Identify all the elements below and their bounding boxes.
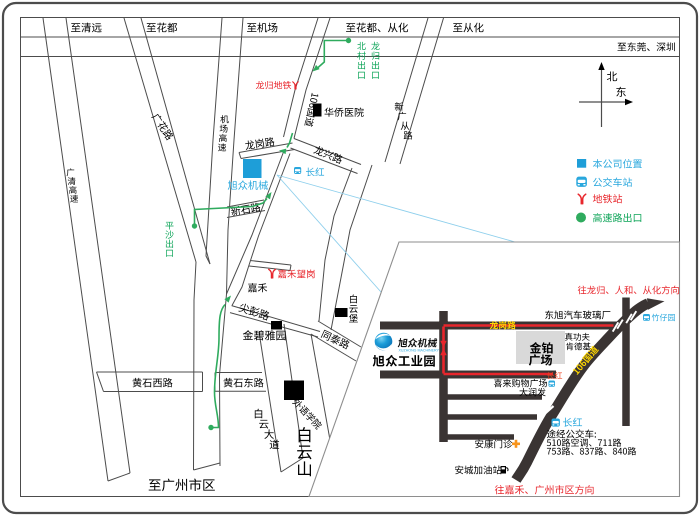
- svg-text:XUZHONG MACHINERY: XUZHONG MACHINERY: [399, 349, 440, 353]
